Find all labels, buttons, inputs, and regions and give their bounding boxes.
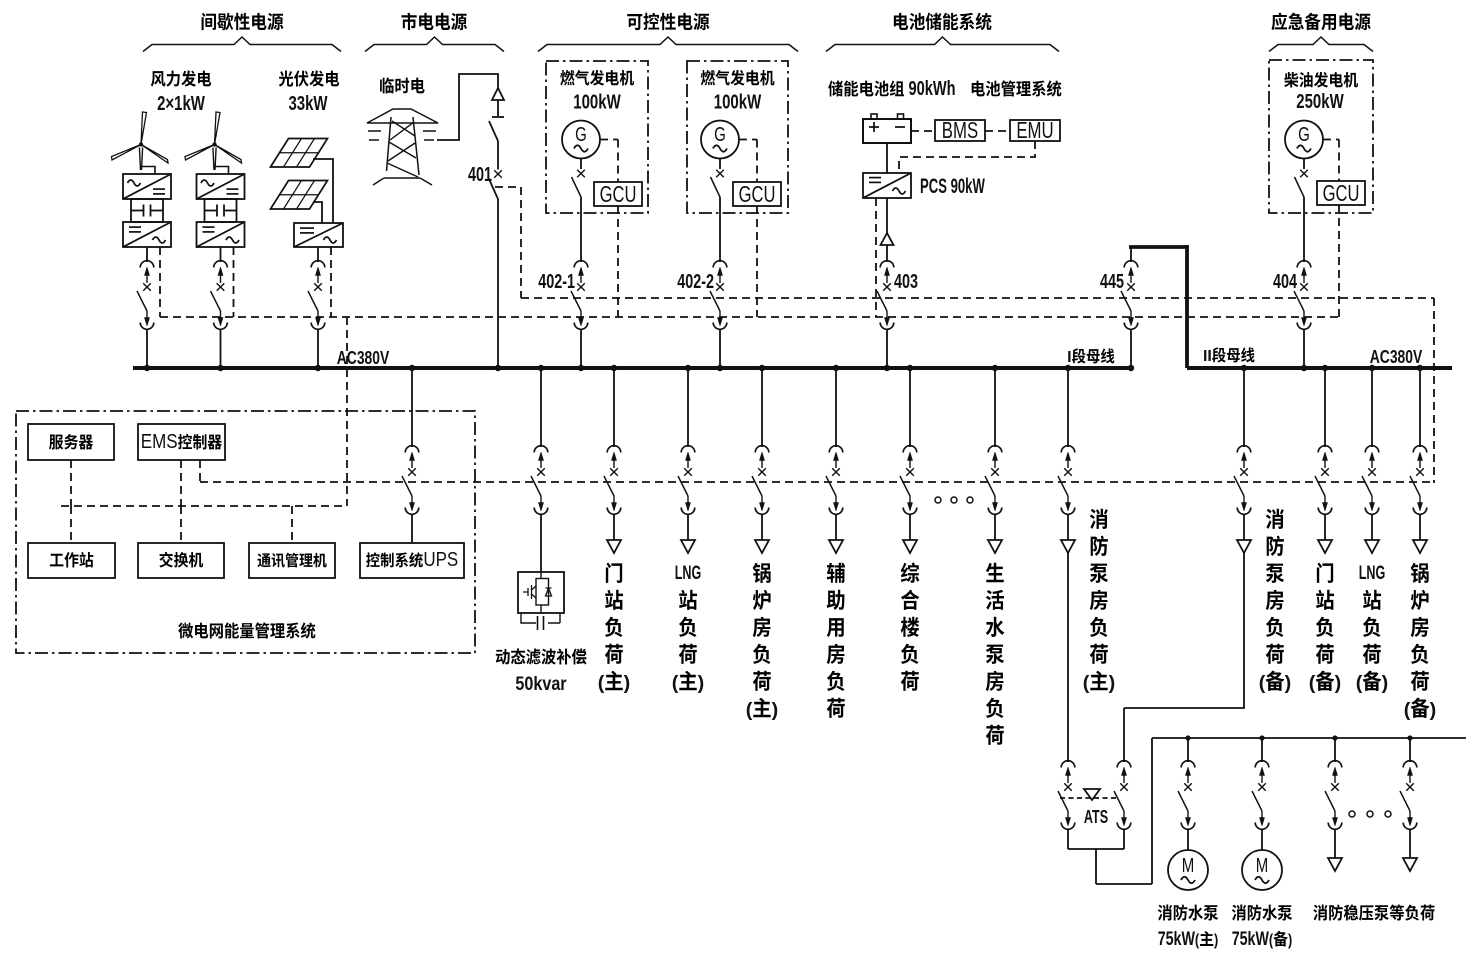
svg-text:EMS: EMS bbox=[141, 430, 178, 453]
svg-text:M: M bbox=[1256, 854, 1268, 877]
svg-text:LNG: LNG bbox=[1359, 562, 1386, 583]
svg-text:G: G bbox=[1298, 123, 1310, 146]
svg-text:(: ( bbox=[746, 699, 753, 721]
svg-text:): ) bbox=[1430, 699, 1437, 721]
svg-text:BMS: BMS bbox=[942, 119, 978, 144]
svg-text:(: ( bbox=[672, 672, 679, 694]
svg-text:): ) bbox=[698, 672, 705, 694]
svg-text:(: ( bbox=[1404, 699, 1411, 721]
svg-text:33kW: 33kW bbox=[288, 92, 327, 115]
svg-text:): ) bbox=[1214, 932, 1218, 950]
svg-text:): ) bbox=[624, 672, 631, 694]
svg-text:AC380V: AC380V bbox=[337, 348, 390, 368]
svg-text:I: I bbox=[1067, 349, 1071, 366]
svg-text:402-1: 402-1 bbox=[538, 270, 575, 293]
svg-text:): ) bbox=[1285, 672, 1292, 694]
svg-text:): ) bbox=[1335, 672, 1342, 694]
svg-text:G: G bbox=[575, 123, 587, 146]
svg-text:G: G bbox=[714, 123, 726, 146]
svg-text:LNG: LNG bbox=[675, 562, 702, 583]
svg-text:445: 445 bbox=[1100, 270, 1124, 293]
svg-text:): ) bbox=[1382, 672, 1389, 694]
svg-text:AC380V: AC380V bbox=[1370, 347, 1423, 367]
svg-text:(: ( bbox=[1356, 672, 1363, 694]
svg-text:GCU: GCU bbox=[739, 182, 776, 207]
svg-text:403: 403 bbox=[894, 270, 918, 293]
svg-text:100kW: 100kW bbox=[573, 90, 620, 113]
svg-text:402-2: 402-2 bbox=[677, 270, 714, 293]
svg-text:(: ( bbox=[1083, 672, 1090, 694]
svg-text:EMU: EMU bbox=[1016, 119, 1053, 144]
svg-text:90kWh: 90kWh bbox=[905, 77, 956, 100]
svg-text:GCU: GCU bbox=[600, 182, 637, 207]
svg-text:2×1kW: 2×1kW bbox=[157, 92, 205, 115]
svg-text:(: ( bbox=[1259, 672, 1266, 694]
svg-text:ATS: ATS bbox=[1084, 808, 1108, 828]
svg-text:75kW: 75kW bbox=[1158, 928, 1196, 950]
svg-text:100kW: 100kW bbox=[714, 90, 761, 113]
svg-text:401: 401 bbox=[468, 163, 492, 186]
svg-text:PCS 90kW: PCS 90kW bbox=[920, 174, 985, 198]
svg-text:(: ( bbox=[1309, 672, 1316, 694]
svg-text:II: II bbox=[1203, 348, 1212, 365]
svg-text:UPS: UPS bbox=[423, 548, 458, 571]
svg-text:): ) bbox=[1288, 932, 1292, 950]
svg-text:): ) bbox=[1109, 672, 1116, 694]
svg-text:50kvar: 50kvar bbox=[515, 673, 566, 695]
svg-text:GCU: GCU bbox=[1323, 181, 1360, 206]
svg-text:(: ( bbox=[1195, 932, 1199, 950]
svg-text:M: M bbox=[1182, 854, 1194, 877]
svg-text:75kW: 75kW bbox=[1232, 928, 1270, 950]
svg-text:(: ( bbox=[1269, 932, 1273, 950]
svg-text:250kW: 250kW bbox=[1296, 90, 1343, 113]
svg-text:(: ( bbox=[598, 672, 605, 694]
svg-text:): ) bbox=[772, 699, 779, 721]
svg-text:404: 404 bbox=[1273, 270, 1297, 293]
